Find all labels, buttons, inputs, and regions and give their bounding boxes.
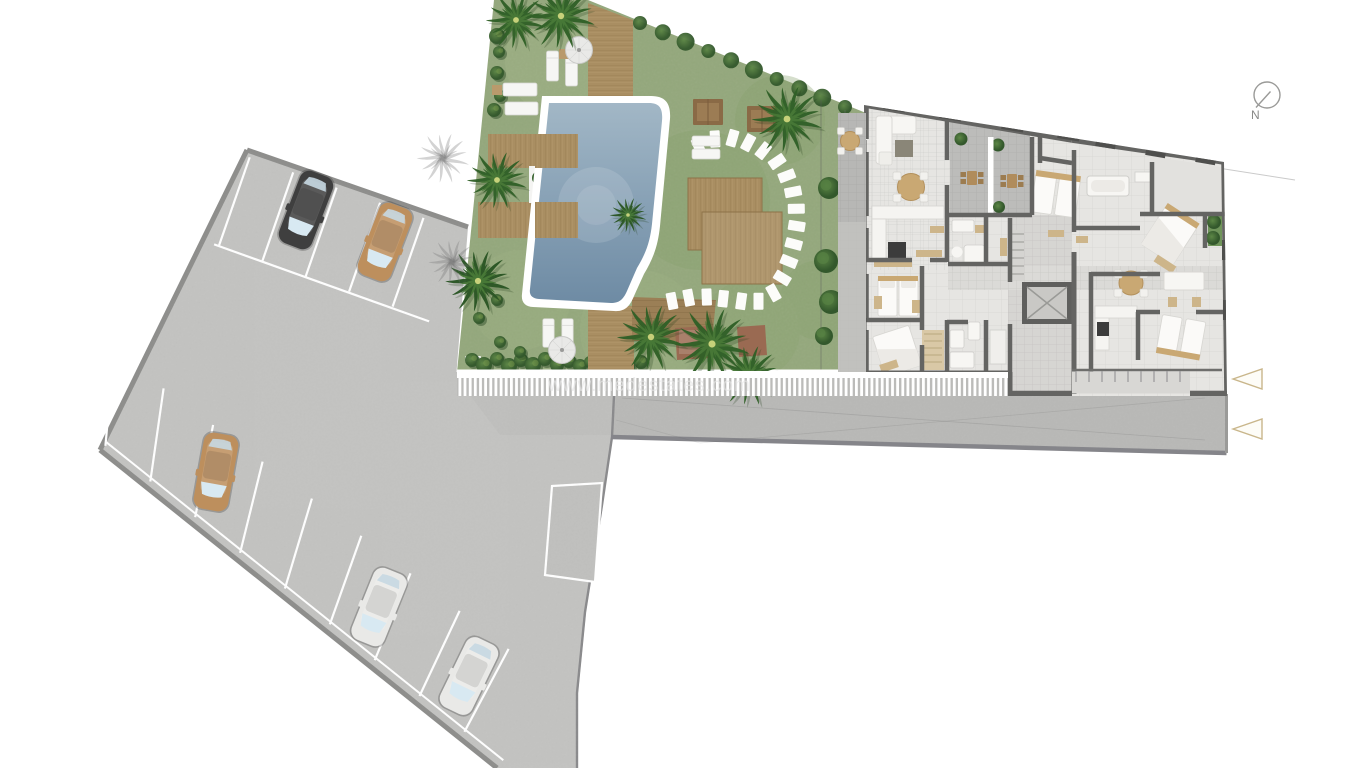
svg-text:N: N [1251, 108, 1260, 122]
svg-text:www.medestates.com: www.medestates.com [547, 375, 751, 396]
